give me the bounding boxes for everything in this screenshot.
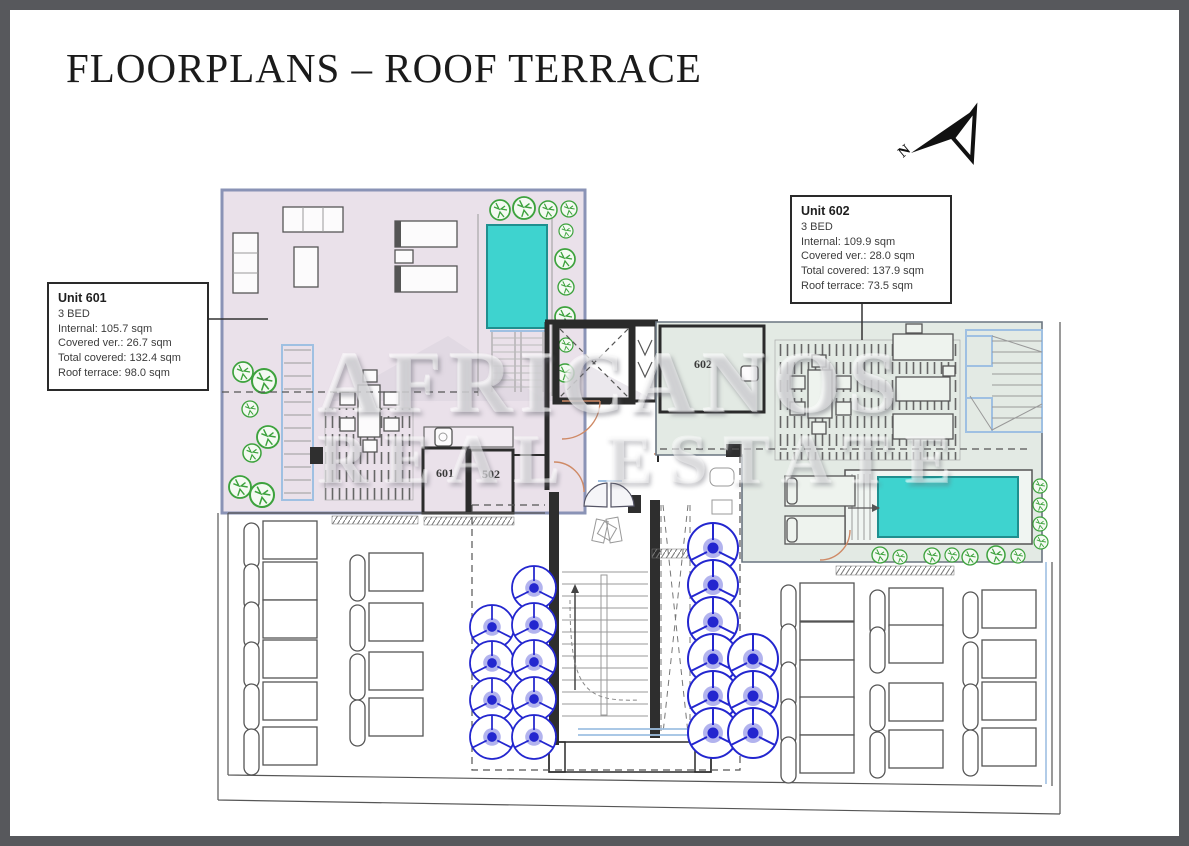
unit-601-covered-veranda: Covered ver.: 26.7 sqm [58, 336, 198, 351]
stairwell [549, 492, 711, 772]
sink [435, 428, 452, 446]
lounge-chair [893, 334, 953, 360]
unit-601-info-box: Unit 601 3 BED Internal: 105.7 sqm Cover… [47, 282, 209, 391]
unit-602-name: Unit 602 [801, 204, 941, 218]
paving-strip [652, 549, 692, 558]
unit-602-internal: Internal: 109.9 sqm [801, 235, 941, 250]
unit-601-total-covered: Total covered: 132.4 sqm [58, 351, 198, 366]
unit-601-roof-terrace: Roof terrace: 98.0 sqm [58, 366, 198, 381]
column-marker [726, 444, 742, 457]
page-title: FLOORPLANS – ROOF TERRACE [66, 44, 702, 92]
unit-601-beds: 3 BED [58, 307, 198, 322]
unit-602-beds: 3 BED [801, 220, 941, 235]
shaft-dashed [661, 505, 690, 733]
unit-602-total-covered: Total covered: 137.9 sqm [801, 264, 941, 279]
floorplan: 601 502 602 [0, 0, 1189, 846]
lounge-chair [893, 414, 953, 439]
unit-602-roof-terrace: Roof terrace: 73.5 sqm [801, 279, 941, 294]
paving-strip [424, 517, 514, 525]
bathroom-fixtures [710, 468, 734, 514]
unit-601-name: Unit 601 [58, 291, 198, 305]
umbrellas [470, 523, 778, 759]
room-502-label: 502 [482, 467, 500, 481]
pool-602 [845, 470, 1032, 544]
room-602-door [741, 366, 758, 381]
unit-602-info-box: Unit 602 3 BED Internal: 109.9 sqm Cover… [790, 195, 952, 304]
paving-strip [332, 516, 418, 524]
room-601-label: 601 [436, 466, 454, 480]
glass-railing [578, 729, 700, 735]
double-door [584, 481, 634, 507]
room-602-label: 602 [694, 357, 712, 371]
column-marker [310, 447, 323, 464]
stair-direction-arrow [571, 584, 579, 593]
unit-601-internal: Internal: 105.7 sqm [58, 322, 198, 337]
pergola-602 [775, 324, 960, 460]
paving-strip [836, 566, 954, 575]
lounge-chair [896, 377, 950, 401]
sketch-furniture [592, 517, 622, 543]
unit-602-covered-veranda: Covered ver.: 28.0 sqm [801, 249, 941, 264]
vent-shaft [634, 325, 656, 401]
